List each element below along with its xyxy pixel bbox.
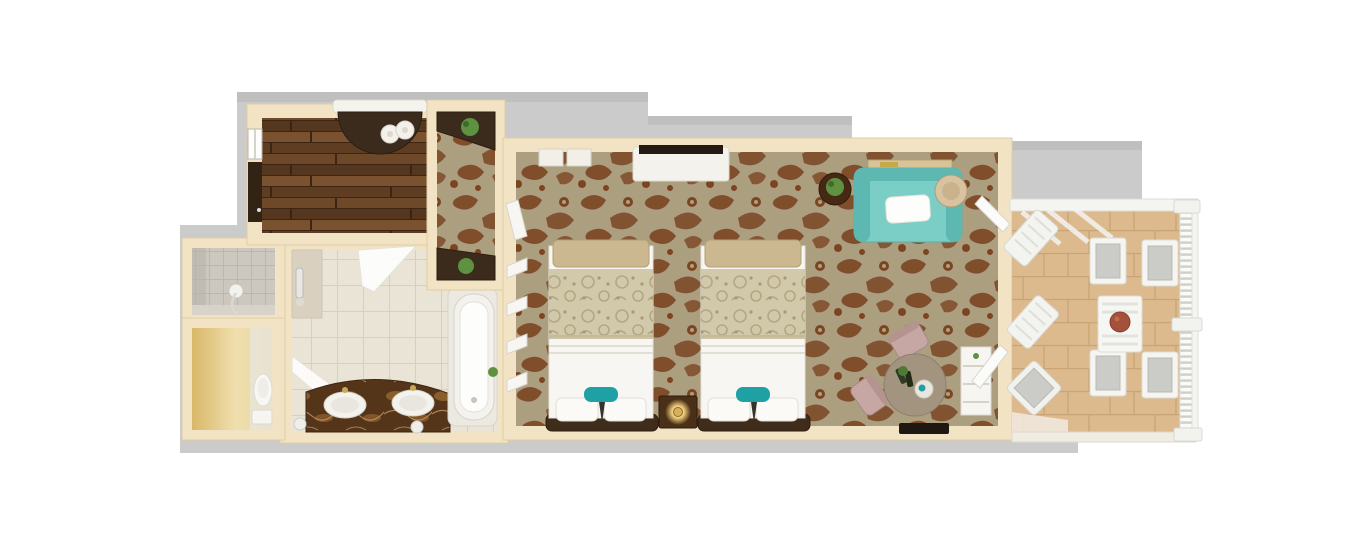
fruit — [1115, 317, 1120, 322]
faucet-left — [342, 387, 348, 393]
wall-unit-2 — [567, 149, 591, 166]
bed-2 — [698, 240, 810, 431]
tv — [639, 145, 723, 154]
water-closet — [182, 318, 285, 440]
glass-accent — [919, 385, 926, 392]
tub-plant — [488, 367, 498, 377]
outdoor-table — [1098, 296, 1142, 352]
railing-post-bottom — [1174, 428, 1202, 441]
lamp — [674, 408, 683, 417]
wall-unit-1 — [539, 149, 563, 166]
console-backplate — [333, 100, 427, 113]
plant-top-leaf — [463, 121, 469, 127]
entry-hall — [427, 100, 505, 290]
bedroom — [503, 138, 1012, 440]
bathtub-basin — [460, 302, 488, 412]
balcony — [1002, 199, 1202, 442]
bed-1 — [546, 240, 658, 431]
shelf-plant — [973, 353, 979, 359]
vanity-knob-right — [411, 421, 423, 433]
toilet-seat — [258, 378, 269, 398]
towel-core-1 — [387, 131, 393, 137]
railing-post-middle — [1172, 318, 1202, 331]
side-table-plant — [826, 178, 844, 196]
faucet-right — [410, 385, 416, 391]
fruit-bowl — [1110, 312, 1130, 332]
round-table — [884, 354, 946, 416]
sink-right-basin — [399, 395, 427, 411]
pergola-beam — [1010, 199, 1198, 211]
toilet-tank — [252, 410, 272, 424]
hand-shower-head — [296, 298, 304, 306]
dressing-room — [247, 100, 433, 245]
rattan-chair-seat — [942, 182, 960, 200]
shower-valve — [229, 284, 243, 298]
railing-post-top — [1174, 200, 1200, 213]
balcony-ledge — [1012, 432, 1196, 442]
chair-top-left — [1090, 238, 1126, 284]
table-plant — [898, 366, 908, 376]
plant-leaf — [828, 181, 834, 187]
floor-plan-rendering — [0, 0, 1370, 550]
plant-bottom — [458, 258, 474, 274]
shower-room — [182, 238, 285, 325]
sink-left-basin — [331, 397, 359, 413]
closet-door-panel — [248, 162, 262, 222]
backdrop-top-shade-2 — [648, 116, 852, 125]
chair-top-right — [1142, 240, 1178, 286]
chair-bottom-right — [1142, 352, 1178, 398]
chair-bottom-left — [1090, 350, 1126, 396]
plant-top — [461, 118, 479, 136]
sofa-pillow — [885, 194, 931, 223]
gold-tray — [880, 162, 898, 167]
door-handle — [257, 208, 261, 212]
vanity-knob-left — [294, 418, 306, 430]
hand-shower — [296, 268, 303, 298]
nightstand — [659, 396, 697, 428]
floor-mat — [899, 423, 949, 434]
tub-drain — [471, 397, 477, 403]
shower-wall-shade — [192, 248, 206, 315]
towel-core-2 — [402, 127, 408, 133]
